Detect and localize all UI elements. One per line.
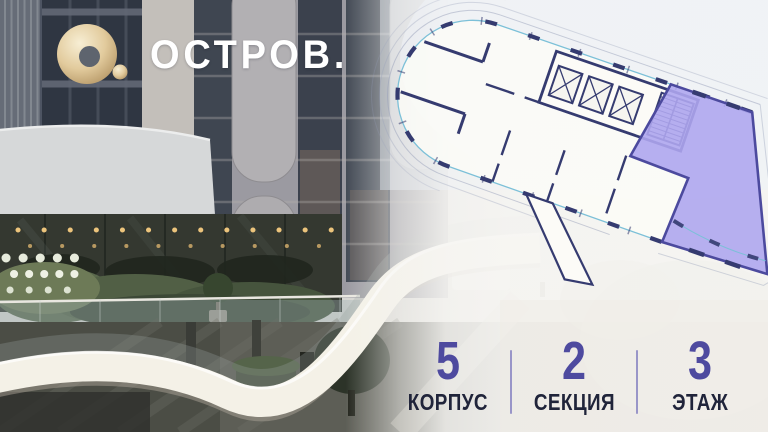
stat-building: 5 КОРПУС [386, 336, 510, 424]
stat-building-label: КОРПУС [408, 389, 488, 416]
stat-section: 2 СЕКЦИЯ [512, 336, 636, 424]
stat-divider [510, 350, 512, 414]
stat-section-value: 2 [562, 336, 586, 386]
logo-dot-icon [113, 65, 128, 80]
unit-stats: 5 КОРПУС 2 СЕКЦИЯ 3 ЭТАЖ [386, 336, 762, 424]
stat-floor-label: ЭТАЖ [672, 389, 728, 416]
logo[interactable]: ОСТРОВ. [50, 20, 359, 90]
stat-building-value: 5 [436, 336, 460, 386]
logo-text: ОСТРОВ. [150, 33, 348, 78]
stat-section-label: СЕКЦИЯ [533, 389, 614, 416]
apartment-selector-screen: ОСТРОВ. 5 КОРПУС 2 СЕКЦИЯ 3 ЭТАЖ [0, 0, 768, 432]
stat-floor: 3 ЭТАЖ [638, 336, 762, 424]
floorplan-svg [368, 0, 768, 345]
logo-o-icon [50, 20, 130, 90]
stat-floor-value: 3 [688, 336, 712, 386]
stat-divider [636, 350, 638, 414]
